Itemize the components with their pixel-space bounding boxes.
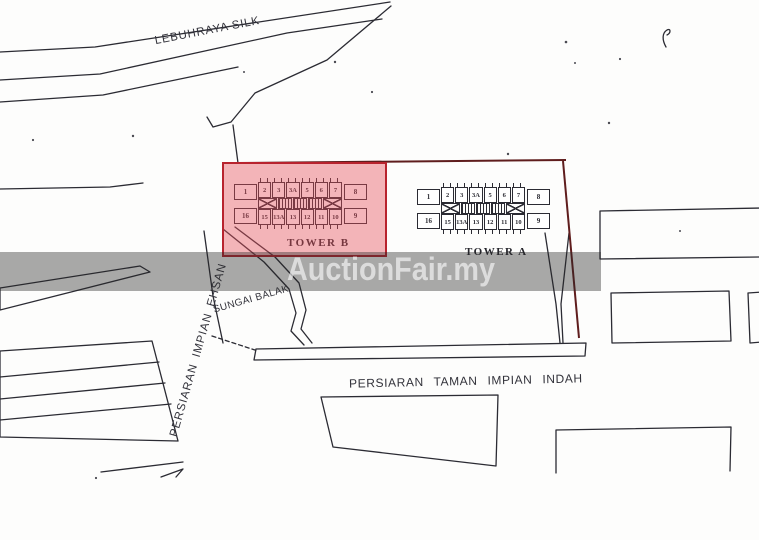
arrow-mark (161, 469, 183, 477)
tower-a-building: 233A5671513A1312111011689 (417, 183, 548, 234)
road-edge-silk-inner (0, 67, 238, 102)
lift-core (461, 203, 475, 214)
unit-cell-12: 12 (484, 214, 497, 230)
lift-core (491, 203, 505, 214)
balcony-ticks-bottom (443, 230, 523, 234)
neighbour-lot-2 (611, 291, 731, 343)
unit-cell-3A: 3A (469, 187, 482, 203)
highlighted-lot-overlay (222, 162, 387, 257)
neighbour-lot-1 (600, 208, 759, 259)
unit-cell-13: 13 (469, 214, 482, 230)
stair-cross-icon (506, 203, 525, 214)
stray-line (101, 462, 183, 472)
unit-cell-2: 2 (441, 187, 454, 203)
neighbour-lot-4 (556, 427, 731, 473)
unit-cell-6: 6 (498, 187, 511, 203)
culvert-dashed-line (212, 336, 258, 351)
unit-row-bottom: 1513A13121110 (441, 214, 525, 230)
unit-cell-8: 8 (527, 189, 550, 205)
unit-cell-3: 3 (455, 187, 468, 203)
scanned-site-plan: 233A5671513A1312111011689 233A5671513A13… (0, 0, 759, 540)
unit-cell-5: 5 (484, 187, 497, 203)
unit-cell-16: 16 (417, 213, 440, 229)
unit-cell-11: 11 (498, 214, 511, 230)
unit-cell-13A: 13A (455, 214, 468, 230)
unit-cell-15: 15 (441, 214, 454, 230)
service-core (441, 203, 525, 214)
boundary-connector (233, 125, 238, 163)
lift-core (476, 203, 490, 214)
watermark-text: AuctionFair.my (287, 251, 495, 288)
unit-cell-1: 1 (417, 189, 440, 205)
site-boundary-right (563, 161, 579, 338)
block-edge-left (0, 183, 143, 189)
stair-cross-icon (441, 203, 460, 214)
terrace-inner-line (0, 362, 159, 377)
neighbour-lot-3 (748, 292, 759, 343)
terrace-inner-line (0, 383, 165, 399)
unit-row-top: 233A567 (441, 187, 525, 203)
lot-polygon (321, 395, 498, 466)
unit-cell-9: 9 (527, 213, 550, 229)
terrace-inner-line (0, 404, 171, 420)
scan-squiggle (663, 30, 670, 47)
unit-cell-10: 10 (512, 214, 525, 230)
unit-cell-7: 7 (512, 187, 525, 203)
